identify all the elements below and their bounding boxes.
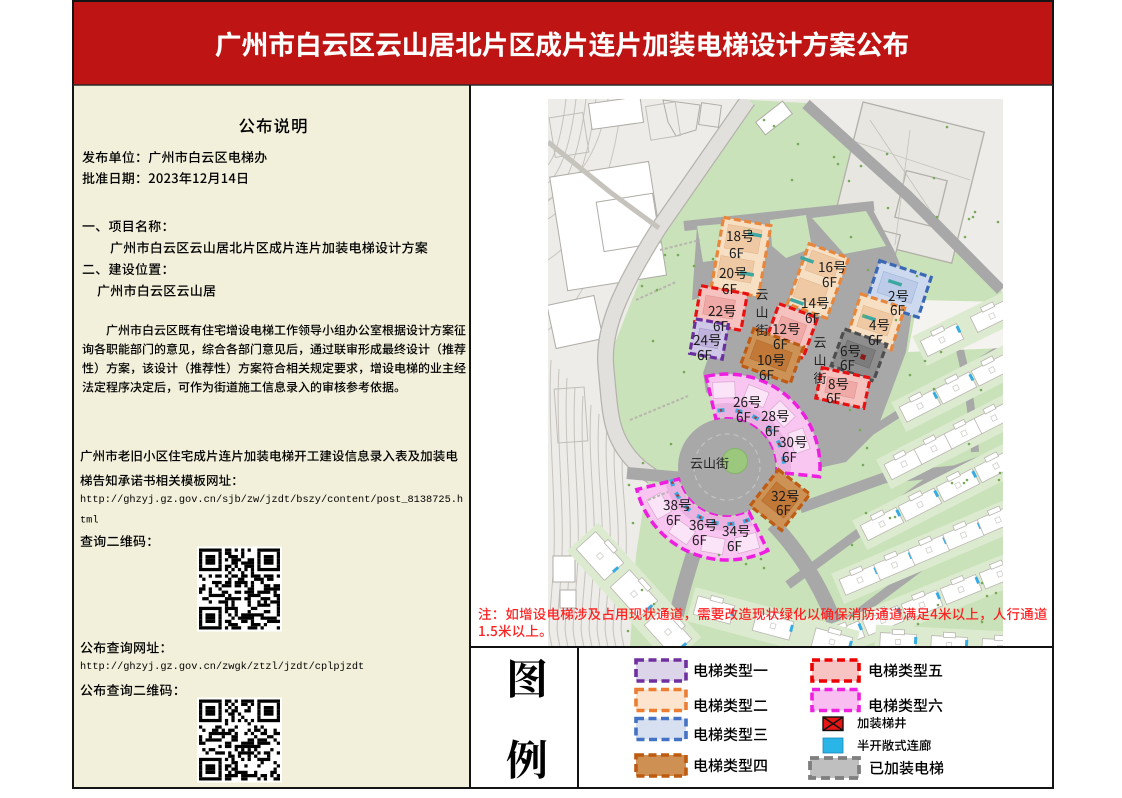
svg-text:tml: tml [80,515,99,527]
svg-text:http://ghzyj.gz.gov.cn/sjb/zw/: http://ghzyj.gz.gov.cn/sjb/zw/jzdt/bszy/… [80,494,463,506]
svg-text:http://ghzyj.gz.gov.cn/zwgk/zt: http://ghzyj.gz.gov.cn/zwgk/ztzl/jzdt/cp… [80,661,364,673]
